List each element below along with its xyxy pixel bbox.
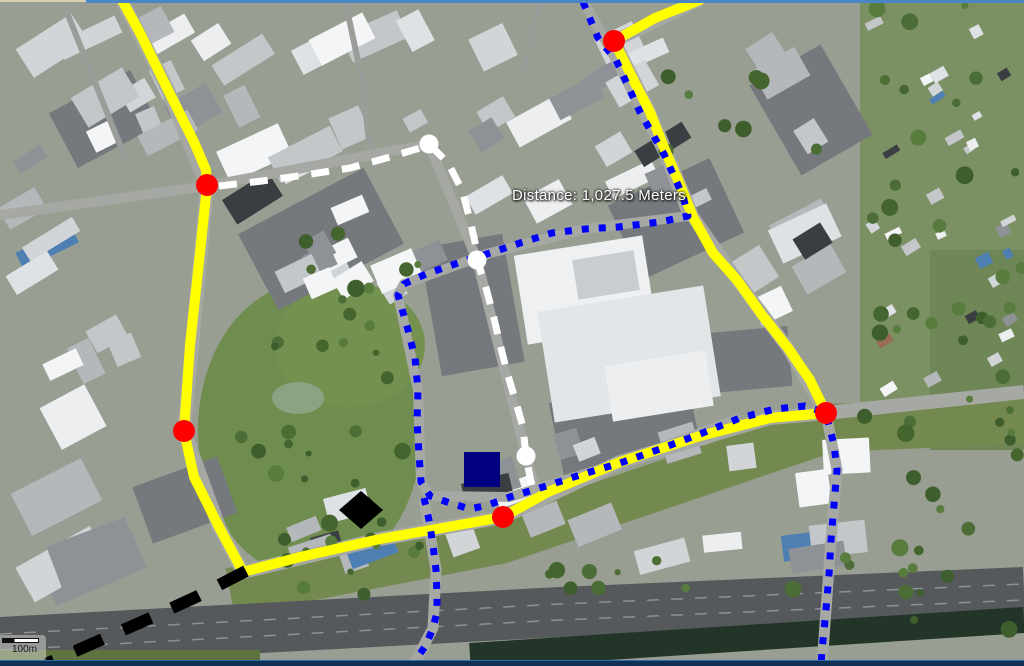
satellite-map[interactable]: Distance: 1,027.5 Meters 100m bbox=[0, 0, 1024, 666]
red-waypoint-left-upper[interactable] bbox=[196, 174, 218, 196]
window-top-edge-left bbox=[0, 0, 86, 2]
scale-bar: 100m bbox=[0, 635, 46, 662]
red-waypoint-left-lower[interactable] bbox=[173, 420, 195, 442]
red-waypoint-top[interactable] bbox=[603, 30, 625, 52]
white-waypoint-lower[interactable] bbox=[517, 447, 536, 466]
red-waypoint-bottom[interactable] bbox=[492, 506, 514, 528]
white-waypoint-middle[interactable] bbox=[468, 251, 487, 270]
scale-bar-label: 100m bbox=[12, 644, 46, 655]
window-top-edge bbox=[86, 0, 1024, 3]
navy-square-marker[interactable] bbox=[464, 452, 500, 487]
scale-bar-graphic bbox=[2, 638, 39, 643]
window-bottom-bar bbox=[0, 660, 1024, 666]
white-waypoint-upper[interactable] bbox=[420, 135, 439, 154]
map-canvas bbox=[0, 0, 1024, 666]
red-waypoint-right[interactable] bbox=[815, 402, 837, 424]
